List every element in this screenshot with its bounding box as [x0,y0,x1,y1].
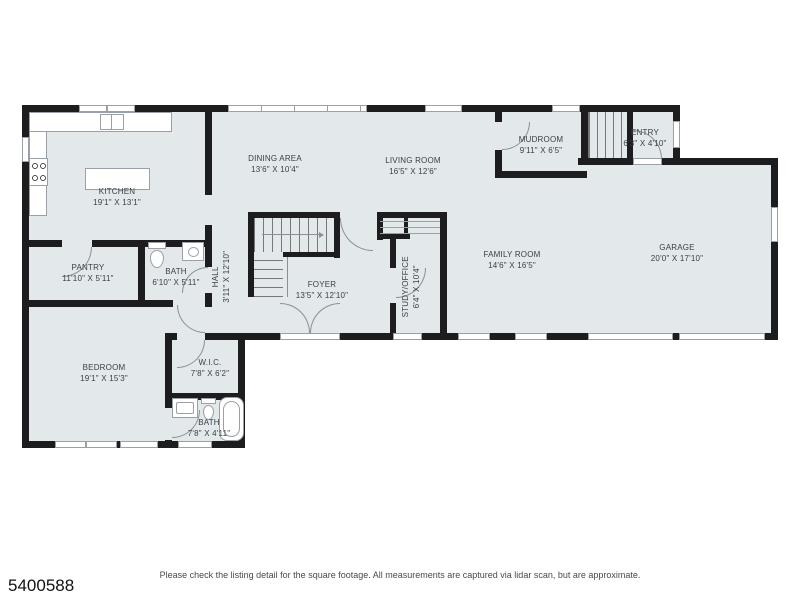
room-name: PANTRY [43,263,133,274]
room-dims: 7'8" X 6'2" [165,369,255,380]
room-dims: 7'8" X 4'11" [174,429,244,440]
window [393,333,422,340]
disclaimer-text: Please check the listing detail for the … [0,570,800,580]
wall [22,300,173,307]
bathroom-sink-icon [172,398,198,418]
garage-door [679,333,765,340]
toilet-icon [201,398,216,404]
wall [283,252,340,257]
window [771,207,778,242]
window [458,333,490,340]
room-name: LIVING ROOM [368,156,458,167]
front-door-opening [280,333,340,340]
room-dims: 16'5" X 12'6" [368,167,458,178]
room-name: GARAGE [632,243,722,254]
room-label-kitchen: KITCHEN 19'1" X 13'1" [72,187,162,209]
kitchen-sink-icon [100,114,124,130]
room-name: KITCHEN [72,187,162,198]
wall [377,212,443,218]
room-name: HALL [211,232,222,322]
room-label-bath2: BATH 7'8" X 4'11" [174,418,244,440]
garage-door [588,333,673,340]
wall [771,158,778,340]
wall [377,234,410,239]
room-dims: 19'1" X 15'3" [59,374,149,385]
room-label-dining: DINING AREA 13'6" X 10'4" [230,154,320,176]
wall [390,303,396,333]
room-dims: 6'10" X 5'11" [132,278,220,289]
room-name: ENTRY [610,128,680,139]
room-label-living: LIVING ROOM 16'5" X 12'6" [368,156,458,178]
bathroom-sink-icon [182,242,204,261]
wall [165,440,172,448]
window [120,441,158,448]
room-name: W.I.C. [165,358,255,369]
room-name: MUDROOM [496,135,586,146]
room-name: FOYER [277,280,367,291]
room-label-mudroom: MUDROOM 9'11" X 6'5" [496,135,586,157]
window [79,105,135,112]
room-dims: 13'5" X 12'10" [277,291,367,302]
room-dims: 11'10" X 5'11" [43,274,133,285]
room-name: BATH [174,418,244,429]
room-name: BATH [132,267,220,278]
room-label-family: FAMILY ROOM 14'6" X 16'5" [467,250,557,272]
floor-plan-canvas: KITCHEN 19'1" X 13'1" DINING AREA 13'6" … [0,0,800,600]
closet-shelves [380,219,440,234]
room-dims: 6'4" X 10'4" [412,242,423,332]
wall [205,333,245,340]
window [55,441,117,448]
room-label-hall: HALL 3'11" X 12'10" [211,232,233,322]
floor-fill-pantry [22,215,214,307]
room-dims: 3'11" X 12'10" [222,232,233,322]
room-label-garage: GARAGE 20'0" X 17'10" [632,243,722,265]
room-dims: 19'1" X 13'1" [72,198,162,209]
listing-number: 5400588 [8,576,74,596]
room-label-bath1: BATH 6'10" X 5'11" [132,267,220,289]
door-opening [633,158,662,165]
window [515,333,547,340]
room-dims: 6'3" X 4'10" [610,139,680,150]
wall [205,112,212,195]
room-name: STUDY/OFFICE [401,242,412,332]
wall [440,212,447,333]
room-label-bedroom: BEDROOM 19'1" X 15'3" [59,363,149,385]
wall [22,240,62,247]
room-dims: 13'6" X 10'4" [230,165,320,176]
room-dims: 9'11" X 6'5" [496,146,586,157]
window [178,441,212,448]
room-name: BEDROOM [59,363,149,374]
room-dims: 20'0" X 17'10" [632,254,722,265]
wall [390,239,396,268]
window [22,137,29,162]
room-name: DINING AREA [230,154,320,165]
window [552,105,580,112]
stair-direction-arrow [262,234,320,235]
wall [495,171,587,178]
room-label-study: STUDY/OFFICE 6'4" X 10'4" [401,242,423,332]
stove-icon [29,158,48,186]
wall [165,333,177,340]
wall [495,105,502,122]
room-label-foyer: FOYER 13'5" X 12'10" [277,280,367,302]
window [425,105,462,112]
room-label-pantry: PANTRY 11'10" X 5'11" [43,263,133,285]
room-dims: 14'6" X 16'5" [467,261,557,272]
toilet-icon [148,242,166,249]
room-label-wic: W.I.C. 7'8" X 6'2" [165,358,255,380]
room-label-entry: ENTRY 6'3" X 4'10" [610,128,680,150]
window [228,105,367,112]
room-name: FAMILY ROOM [467,250,557,261]
